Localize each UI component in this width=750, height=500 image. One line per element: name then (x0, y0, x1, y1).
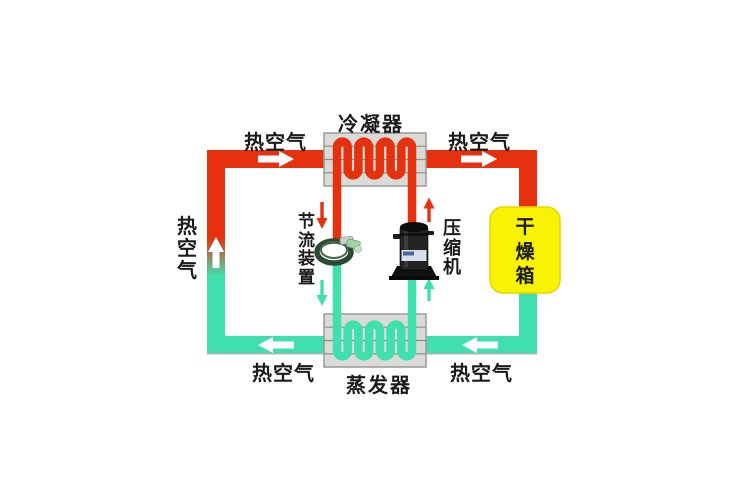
hot-air-label-left-side: 热空气 (176, 215, 198, 281)
refrigerant-arrow-down-teal-icon (317, 280, 328, 306)
refrigerant-arrow-down-red-icon (317, 202, 328, 229)
throttle-device-label: 节流装置 (297, 213, 316, 287)
compressor-label: 压缩机 (442, 219, 462, 278)
compressor-illustration (389, 222, 439, 280)
refrigerant-arrow-up-red-icon (424, 198, 435, 223)
hot-air-label-top-right: 热空气 (448, 126, 511, 155)
drying-box-label: 干燥箱 (514, 215, 536, 289)
evaporator-label: 蒸发器 (346, 369, 412, 398)
diagram-canvas (0, 0, 750, 500)
condenser-label: 冷凝器 (338, 108, 404, 137)
heat-pump-dryer-diagram: 冷凝器 蒸发器 热空气 热空气 热空气 热空气 热空气 节流装置 压缩机 干燥箱 (0, 0, 750, 500)
hot-air-label-bottom-right: 热空气 (450, 357, 513, 386)
throttle-device-illustration (317, 236, 362, 263)
refrigerant-arrow-up-teal-icon (424, 278, 435, 301)
hot-air-label-bottom-left: 热空气 (252, 357, 315, 386)
hot-air-label-top-left: 热空气 (244, 126, 307, 155)
